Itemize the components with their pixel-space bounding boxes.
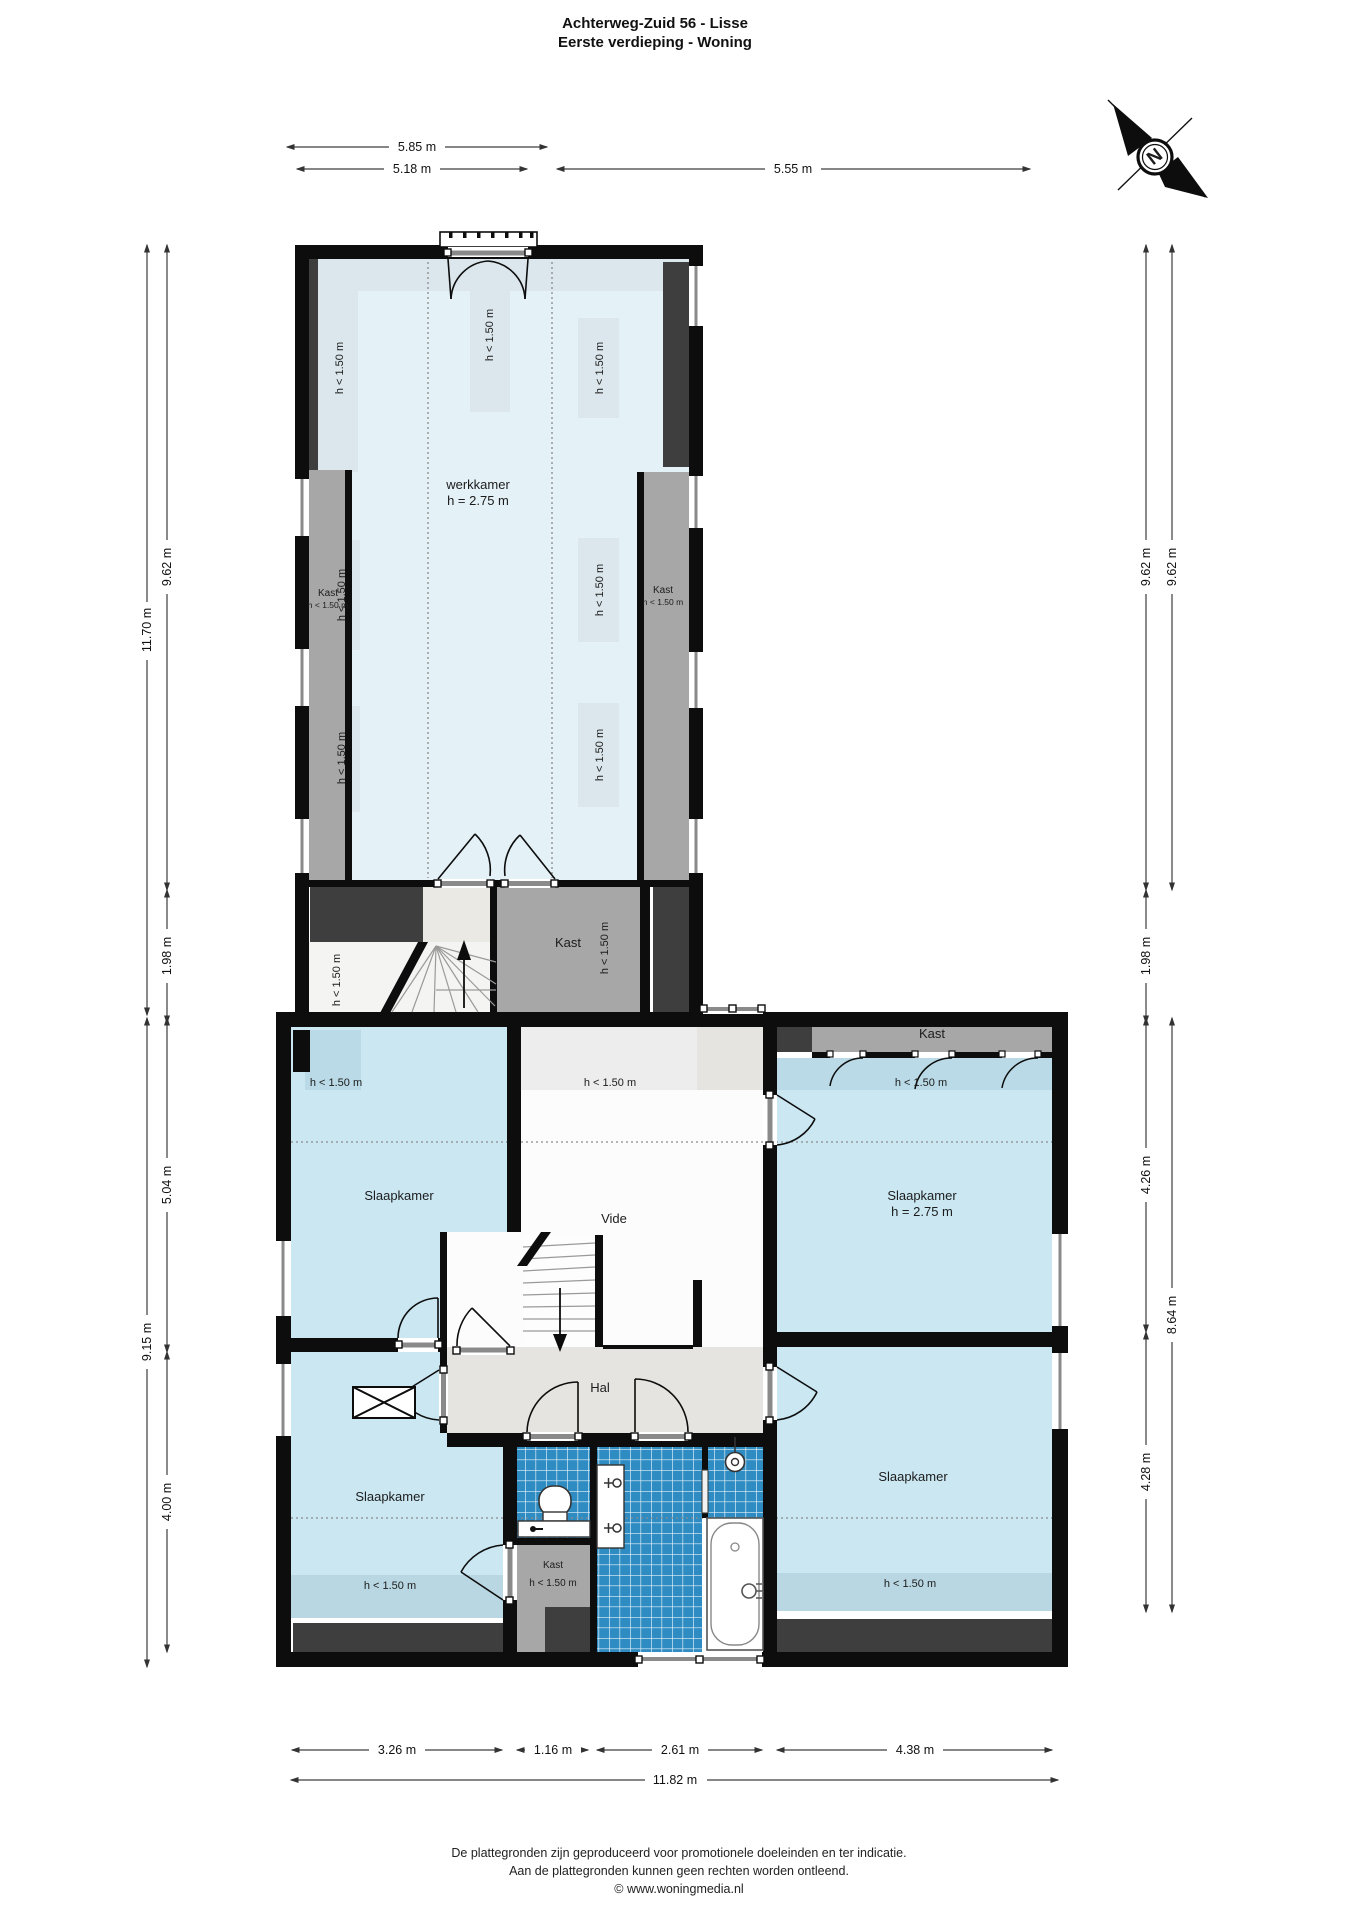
low-height-label: h < 1.50 m <box>594 564 606 616</box>
dim-bottom-4: 4.38 m <box>896 1743 934 1757</box>
plan-title: Achterweg-Zuid 56 - Lisse Eerste verdiep… <box>0 14 1310 52</box>
floorplan-page: Achterweg-Zuid 56 - Lisse Eerste verdiep… <box>0 0 1358 1920</box>
stairs-down <box>517 1232 595 1352</box>
dim-left-2: 9.62 m <box>160 548 174 586</box>
floor-kast-wing-right <box>644 472 689 880</box>
label-slaapkamer-bottom-left: Slaapkamer <box>355 1489 425 1504</box>
dim-bottom-2: 1.16 m <box>534 1743 572 1757</box>
plan-title-address: Achterweg-Zuid 56 - Lisse <box>0 14 1310 33</box>
dim-left-4: 9.15 m <box>140 1323 154 1361</box>
floor-hal <box>447 1347 777 1433</box>
dim-left-1: 11.70 m <box>140 608 154 652</box>
low-height-label: h < 1.50 m <box>594 729 606 781</box>
floor-kast-wing-left <box>309 470 345 880</box>
dim-top-1: 5.85 m <box>398 140 436 154</box>
label-slaapkamer-top-right: Slaapkamer <box>887 1188 957 1203</box>
compass-rose: N <box>1108 100 1208 198</box>
low-height-label: h < 1.50 m <box>310 1077 362 1089</box>
label-kast-bathroom: Kast <box>543 1560 563 1571</box>
plan-title-floor: Eerste verdieping - Woning <box>0 33 1310 52</box>
balcony-rail <box>440 232 537 247</box>
low-height-label: h < 1.50 m <box>584 1077 636 1089</box>
label-slaapkamer-bottom-right: Slaapkamer <box>878 1469 948 1484</box>
dim-right-3: 1.98 m <box>1139 937 1153 975</box>
low-height-label: h < 1.50 m <box>331 954 343 1006</box>
dim-top-2: 5.18 m <box>393 162 431 176</box>
band-bottom-left-bedroom <box>293 1623 503 1652</box>
low-height-label: h < 1.50 m <box>895 1077 947 1089</box>
label-werkkamer-height: h = 2.75 m <box>447 493 509 508</box>
dim-left-6: 4.00 m <box>160 1483 174 1521</box>
footer-disclaimer-1: De plattegronden zijn geproduceerd voor … <box>0 1844 1358 1862</box>
floorplan-drawing: N <box>0 0 1358 1920</box>
dim-right-2: 9.62 m <box>1165 548 1179 586</box>
floor-slaapkamer-bottom-right <box>777 1347 1052 1573</box>
toilet-sink-icon <box>518 1521 590 1537</box>
label-slaapkamer-top-right-height: h = 2.75 m <box>891 1204 953 1219</box>
low-height-label: h < 1.50 m <box>599 922 611 974</box>
label-kast-bathroom-height: h < 1.50 m <box>529 1578 577 1589</box>
low-height-label: h < 1.50 m <box>884 1578 936 1590</box>
footer-copyright: © www.woningmedia.nl <box>0 1880 1358 1898</box>
dim-right-5: 8.64 m <box>1165 1296 1179 1334</box>
dim-left-3: 1.98 m <box>160 937 174 975</box>
floor-kast-bathroom-dark <box>545 1607 590 1652</box>
dim-right-4: 4.26 m <box>1139 1156 1153 1194</box>
floor-stair-landing <box>447 1232 521 1347</box>
label-slaapkamer-top-left: Slaapkamer <box>364 1188 434 1203</box>
dim-bottom-3: 2.61 m <box>661 1743 699 1757</box>
low-height-label: h < 1.50 m <box>336 732 348 784</box>
low-height-label: h < 1.50 m <box>484 309 496 361</box>
label-hal: Hal <box>590 1380 610 1395</box>
label-kast-landing: Kast <box>555 935 581 950</box>
low-height-label: h < 1.50 m <box>334 342 346 394</box>
band-bottom-right-bedroom <box>777 1619 1052 1652</box>
bathtub-icon <box>707 1518 764 1650</box>
label-vide: Vide <box>601 1211 627 1226</box>
toilet-icon <box>539 1486 571 1521</box>
floor-landing <box>423 887 497 945</box>
label-kast-top-right: Kast <box>919 1026 945 1041</box>
dim-bottom-5: 11.82 m <box>653 1773 697 1787</box>
dim-top-3: 5.55 m <box>774 162 812 176</box>
low-height-label: h < 1.50 m <box>364 1580 416 1592</box>
washbasin-icon <box>597 1465 624 1548</box>
label-kast-wing-right: Kast <box>653 585 673 596</box>
dim-bottom-1: 3.26 m <box>378 1743 416 1757</box>
dim-right-6: 4.28 m <box>1139 1453 1153 1491</box>
label-kast-wing-left-height: h < 1.50 m <box>308 600 348 610</box>
plan-footer: De plattegronden zijn geproduceerd voor … <box>0 1844 1358 1898</box>
floor-kast-landing <box>497 887 640 1013</box>
shaft-box <box>353 1387 415 1418</box>
label-kast-wing-right-height: h < 1.50 m <box>643 597 683 607</box>
dim-right-1: 9.62 m <box>1139 548 1153 586</box>
dim-left-5: 5.04 m <box>160 1166 174 1204</box>
label-werkkamer: werkkamer <box>445 477 510 492</box>
low-height-label: h < 1.50 m <box>594 342 606 394</box>
footer-disclaimer-2: Aan de plattegronden kunnen geen rechten… <box>0 1862 1358 1880</box>
label-kast-wing-left: Kast <box>318 588 338 599</box>
floor-nook <box>697 1018 763 1090</box>
